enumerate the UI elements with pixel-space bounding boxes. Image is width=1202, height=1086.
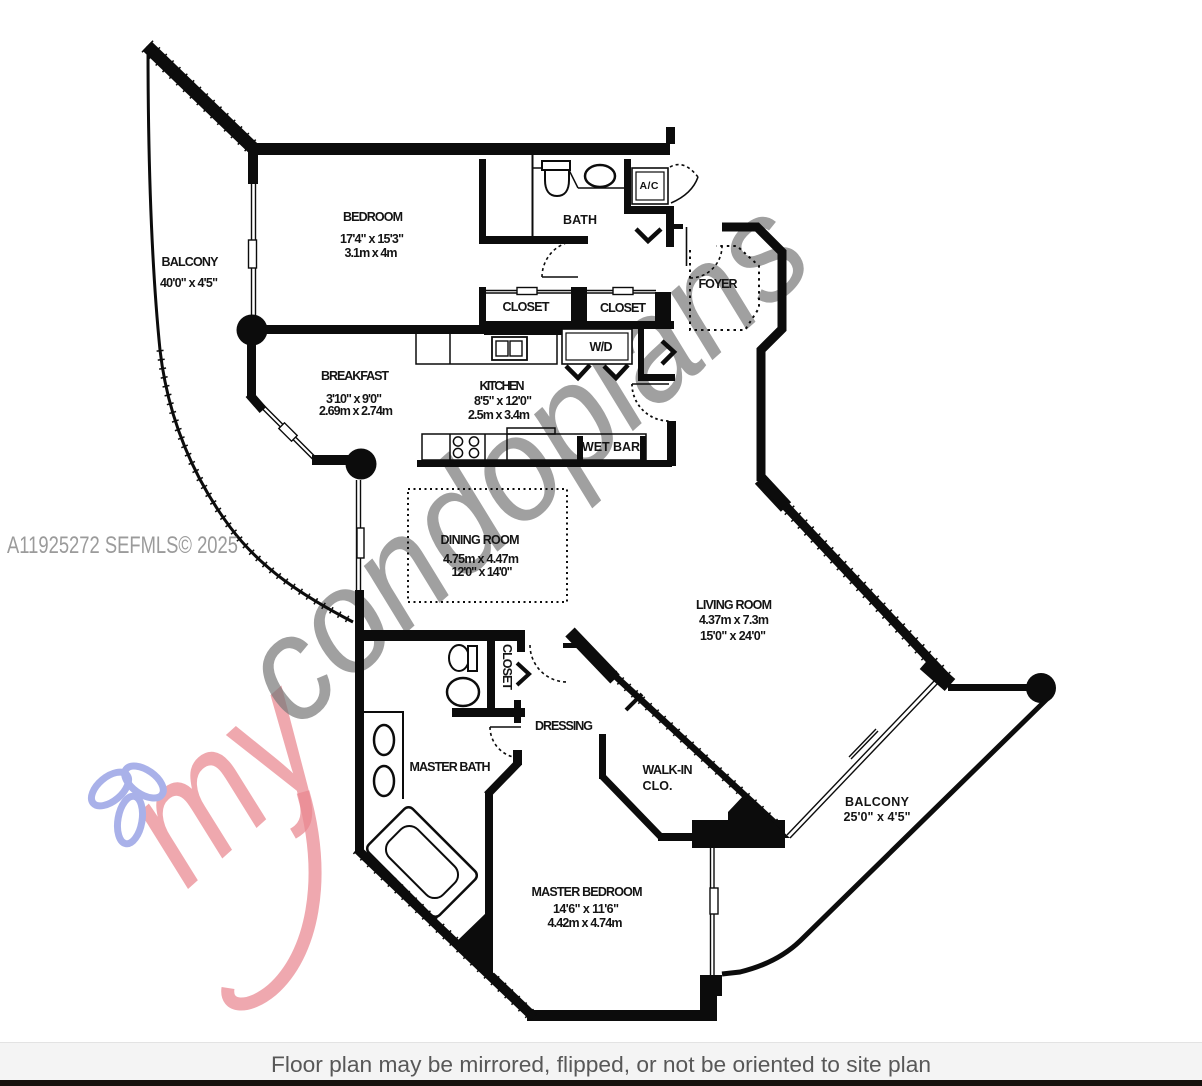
svg-text:KITCHEN: KITCHEN <box>480 379 525 393</box>
svg-text:CLOSET: CLOSET <box>600 301 646 315</box>
svg-text:WALK-IN: WALK-IN <box>643 763 693 777</box>
svg-text:WET BAR: WET BAR <box>582 440 640 454</box>
svg-text:15'0" x 24'0": 15'0" x 24'0" <box>700 629 766 643</box>
svg-text:BEDROOM: BEDROOM <box>343 210 403 224</box>
svg-text:BALCONY: BALCONY <box>845 795 910 809</box>
svg-text:BALCONY: BALCONY <box>162 255 220 269</box>
svg-text:40'0" x 4'5": 40'0" x 4'5" <box>160 276 218 290</box>
svg-text:MASTER BEDROOM: MASTER BEDROOM <box>532 885 643 899</box>
svg-text:MASTER BATH: MASTER BATH <box>410 760 491 774</box>
svg-text:BATH: BATH <box>563 213 597 227</box>
svg-text:Floor plan may be mirrored, fl: Floor plan may be mirrored, flipped, or … <box>271 1052 931 1077</box>
svg-text:CLOSET: CLOSET <box>503 300 550 314</box>
svg-text:FOYER: FOYER <box>699 277 738 291</box>
svg-text:LIVING ROOM: LIVING ROOM <box>696 598 772 612</box>
svg-text:CLOSET: CLOSET <box>500 644 514 690</box>
svg-text:3.1m x 4m: 3.1m x 4m <box>345 246 398 260</box>
svg-text:17'4" x 15'3": 17'4" x 15'3" <box>340 232 404 246</box>
svg-text:BREAKFAST: BREAKFAST <box>321 369 389 383</box>
svg-text:4.37m x 7.3m: 4.37m x 7.3m <box>699 613 769 627</box>
svg-text:A11925272 SEFMLS© 2025: A11925272 SEFMLS© 2025 <box>7 532 238 559</box>
svg-text:2.69m x 2.74m: 2.69m x 2.74m <box>319 404 393 418</box>
svg-text:8'5" x 12'0": 8'5" x 12'0" <box>474 394 532 408</box>
svg-text:DRESSING: DRESSING <box>535 719 593 733</box>
svg-text:4.75m x 4.47m: 4.75m x 4.47m <box>443 552 519 566</box>
svg-text:CLO.: CLO. <box>643 779 673 793</box>
svg-text:A/C: A/C <box>640 180 659 192</box>
svg-text:2.5m x 3.4m: 2.5m x 3.4m <box>468 408 530 422</box>
svg-text:4.42m x 4.74m: 4.42m x 4.74m <box>548 916 623 930</box>
svg-text:25'0" x 4'5": 25'0" x 4'5" <box>844 810 911 824</box>
svg-text:12'0" x 14'0": 12'0" x 14'0" <box>452 565 513 579</box>
svg-text:W/D: W/D <box>590 340 613 354</box>
svg-text:DINING ROOM: DINING ROOM <box>441 533 520 547</box>
svg-text:14'6" x 11'6": 14'6" x 11'6" <box>553 902 619 916</box>
